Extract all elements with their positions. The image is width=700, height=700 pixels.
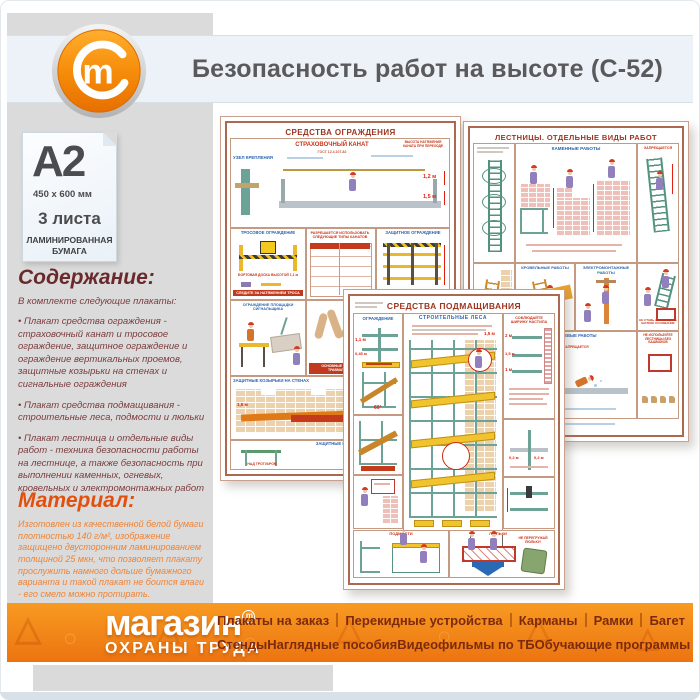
tensioner-part: [241, 282, 251, 287]
anchor-hardware: [235, 183, 259, 188]
text-line: [412, 329, 486, 331]
worker-figure: [644, 294, 651, 306]
page-title: Безопасность работ на высоте (С-52): [192, 35, 692, 103]
worker-figure: [420, 551, 427, 563]
contents-intro: В комплекте следующие плакаты:: [18, 296, 208, 308]
worker-figure: [400, 533, 407, 545]
paper-type: ЛАМИНИРОВАННАЯ БУМАГА: [23, 235, 116, 256]
poster-frame: СРЕДСТВА ПОДМАЩИВАНИЯ ОГРАЖДЕНИЕ 1,1 м 0…: [348, 294, 560, 585]
fence-post: [435, 243, 438, 285]
section-label: ЭЛЕКТРОМОНТАЖНЫЕ РАБОТЫ: [578, 266, 634, 275]
text-line: [412, 333, 478, 335]
dimension-label: 1,5 м: [423, 195, 436, 201]
wall-notch: [261, 389, 275, 395]
menu-item-training-programs[interactable]: Обучающие программы: [535, 637, 691, 652]
dimension-label: 0,45 м: [355, 352, 367, 356]
section-label: ЗАЩИТНЫЕ КОЗЫРЬКИ НА СТЕНАХ: [233, 379, 333, 384]
table-header-bar: [310, 243, 370, 249]
fence-post: [387, 243, 390, 285]
anchor-post: [241, 169, 250, 215]
worker-figure: [490, 538, 497, 550]
chair-outline: [648, 354, 672, 372]
material-section: Материал: Изготовлен из качественной бел…: [18, 489, 208, 601]
ladder-shoe-icon: [651, 396, 657, 403]
material-heading: Материал:: [18, 489, 208, 513]
menu-separator: [640, 613, 642, 627]
section-label: ЗАЩИТНОЕ ОГРАЖДЕНИЕ: [379, 231, 447, 236]
ladder-shoe-icon: [669, 396, 675, 403]
text-line: [355, 302, 383, 304]
walkway-rail: [510, 508, 548, 511]
panel-brace: [353, 415, 403, 475]
pole-crossarm: [596, 280, 616, 283]
info-arrow-head: [474, 567, 502, 576]
caption-label: ВЫСОТА НАТЯЖЕНИЯ КАНАТА ПРИ ПЕРЕХОДЕ: [401, 141, 445, 149]
welder-figure: [575, 376, 589, 387]
panel-ladder-shoes: НЕ ИСПОЛЬЗУЙТЕ ЛЕСТНИЦЫ БЕЗ БАШМАКОВ: [637, 331, 679, 419]
angle-label: 60°: [374, 406, 382, 411]
table-divider: [339, 243, 340, 295]
scaffold: [520, 208, 548, 234]
text-line: [509, 393, 549, 395]
paper-size: 450 x 600 мм: [33, 189, 92, 200]
mannequin-figure: [314, 312, 328, 339]
base-plate: [470, 520, 490, 527]
poster-title: СРЕДСТВА ПОДМАЩИВАНИЯ: [353, 301, 555, 311]
worker-figure: [247, 329, 254, 341]
trestle-tower: [360, 541, 380, 573]
trestle-frame: [392, 545, 440, 573]
menu-item-posters[interactable]: Плакаты на заказ: [217, 613, 329, 628]
section-label: ТРОСОВОЕ ОГРАЖДЕНИЕ: [233, 231, 303, 236]
menu-item-frames[interactable]: Рамки: [594, 613, 634, 628]
base-plate: [414, 520, 434, 527]
panel-unstable-base: НЕ СТАВЬ ЛЕСТНИЦУ НА ШАТКОЕ ОСНОВАНИЕ: [637, 263, 679, 331]
menu-item-visual-aids[interactable]: Наглядные пособия: [267, 637, 397, 652]
sling-line: [280, 317, 287, 335]
text-line: [412, 325, 492, 327]
logo-letter: m: [82, 53, 113, 92]
text-line: [355, 306, 377, 308]
panel-deck-joint: 0,2 м 0,2 м: [503, 419, 555, 477]
caption-label: НАД ТРОТУАРОМ: [237, 463, 287, 467]
menu-separator: [585, 613, 587, 627]
menu-row-2: Стенды Наглядные пособия Видеофильмы по …: [207, 637, 693, 652]
warning-label: НЕ СТАВЬ ЛЕСТНИЦУ НА ШАТКОЕ ОСНОВАНИЕ: [639, 319, 677, 326]
text-line: [477, 151, 503, 153]
brick-wall: [382, 496, 398, 524]
menu-item-baguette[interactable]: Багет: [650, 613, 685, 628]
cage-hoop: [482, 168, 506, 184]
worker-figure: [530, 172, 537, 184]
dimension-arrow: [553, 188, 554, 228]
fence-post: [411, 243, 414, 285]
ladder: [646, 157, 670, 232]
poster-thumbnail-scaffolding[interactable]: СРЕДСТВА ПОДМАЩИВАНИЯ ОГРАЖДЕНИЕ 1,1 м 0…: [343, 289, 565, 590]
table-title: РАЗРЕШАЕТСЯ ИСПОЛЬЗОВАТЬ СЛЕДУЮЩИЕ ТИПЫ …: [309, 231, 371, 239]
sheet-count: 3 листа: [23, 209, 116, 229]
weld-spark: [594, 384, 597, 387]
panel-cable-fence: ТРОСОВОЕ ОГРАЖДЕНИЕ БОРТОВАЯ ДОСКА ВЫСОТ…: [230, 228, 306, 300]
dimension-label: 1 м: [505, 368, 512, 373]
text-line: [374, 483, 390, 485]
panel-signalman-platform: ОГРАЖДЕНИЕ ПЛОЩАДКИ СИГНАЛЬЩИКА: [230, 300, 306, 376]
person-silhouette: [526, 486, 532, 498]
striped-bar: [239, 255, 297, 259]
warning-label: ЗАПРЕЩАЕТСЯ: [640, 146, 676, 150]
shop-logo[interactable]: m: [50, 22, 148, 120]
section-label: ОГРАЖДЕНИЕ: [357, 316, 399, 321]
toe-board-stripe: [366, 363, 392, 365]
cage-hoop: [482, 194, 506, 210]
warning-bar: [361, 466, 395, 471]
panel-safety-rope: СТРАХОВОЧНЫЙ КАНАТ ГОСТ 12.4.107-82 УЗЕЛ…: [230, 138, 450, 228]
poster-content: СРЕДСТВА ПОДМАЩИВАНИЯ ОГРАЖДЕНИЕ 1,1 м 0…: [353, 299, 555, 580]
dimension-label: 1,2 м: [423, 175, 436, 181]
platform-leg: [241, 347, 243, 367]
menu-row-1: Плакаты на заказ Перекидные устройства К…: [207, 613, 693, 628]
dimension-arrow: [444, 245, 445, 285]
section-label: СОБЛЮДАЙТЕ ШИРИНУ НАСТИЛА: [507, 316, 551, 325]
menu-separator: [336, 613, 338, 627]
contents-item: • Плакат лестница и отдельные виды работ…: [18, 433, 208, 496]
deck-bar: [512, 336, 542, 339]
deck-bar: [512, 354, 542, 357]
worker-figure: [293, 353, 300, 365]
worker-figure: [662, 276, 669, 288]
hatched-wall: [544, 328, 552, 384]
dimension-arrow: [507, 488, 508, 512]
footer-bar: △ ○ △ ○ △ ○ △ △ магазинm ОХРАНЫ ТРУДА Пл…: [7, 603, 693, 662]
section-label: СТРАХОВОЧНЫЙ КАНАТ: [277, 142, 387, 149]
panel-cradles: ЛЮЛЬКИ НЕ ПЕРЕГРУЖАЙ ЛЮЛЬКУ!: [449, 530, 555, 578]
safety-rope-line: [283, 169, 425, 171]
guardrail-post: [378, 328, 381, 364]
dimension-label: 2 м: [505, 334, 512, 339]
section-label: СТРОИТЕЛЬНЫЕ ЛЕСА: [413, 316, 493, 322]
product-page: Безопасность работ на высоте (С-52) m A2…: [0, 0, 700, 700]
panel-masonry-works: КАМЕННЫЕ РАБОТЫ: [515, 143, 637, 263]
material-body: Изготовлен из качественной белой бумаги …: [18, 519, 208, 601]
text-line: [509, 403, 547, 405]
dimension-arrow: [444, 171, 445, 185]
warning-sign: [371, 479, 395, 494]
gost-label: ГОСТ 12.4.107-82: [297, 150, 367, 154]
safety-pattern-icon: △: [15, 609, 41, 649]
support-post: [528, 430, 531, 470]
panel-trestles: ПОДМОСТИ: [353, 530, 449, 578]
brick-wall: [520, 184, 550, 208]
text-line: [287, 157, 323, 159]
warning-label: НЕ ИСПОЛЬЗУЙТЕ ЛЕСТНИЦЫ БЕЗ БАШМАКОВ: [639, 334, 677, 345]
worker-figure: [468, 538, 475, 550]
deck-bar: [512, 370, 542, 373]
section-label: ОГРАЖДЕНИЕ ПЛОЩАДКИ СИГНАЛЬЩИКА: [233, 303, 303, 312]
panel-worker-sign: [353, 475, 403, 529]
worker-figure: [584, 310, 591, 322]
walk-beam: [279, 201, 441, 208]
cage-hoop: [482, 220, 506, 236]
worker-figure: [349, 179, 356, 191]
worker-figure: [608, 166, 615, 178]
brick-step: [556, 188, 572, 198]
text-line: [509, 388, 549, 390]
poster-title: ЛЕСТНИЦЫ. ОТДЕЛЬНЫЕ ВИДЫ РАБОТ: [473, 133, 679, 142]
contents-item: • Плакат средства подмащивания - строите…: [18, 400, 208, 425]
text-line: [526, 244, 622, 246]
warning-sign: [260, 241, 276, 254]
text-line: [509, 398, 543, 400]
tensioner-part: [261, 283, 281, 286]
menu-separator: [510, 613, 512, 627]
panel-deck-width: СОБЛЮДАЙТЕ ШИРИНУ НАСТИЛА 2 м 1,5 м 1 м: [503, 313, 555, 419]
section-label: ЛЮЛЬКИ: [478, 532, 518, 537]
dimension-arrow: [672, 164, 673, 194]
worker-figure: [656, 178, 663, 190]
wall-notch: [311, 389, 325, 395]
contents-section: Содержание: В комплекте следующие плакат…: [18, 266, 208, 495]
warning-bar: СЛЕДИТЕ ЗА НАТЯЖЕНИЕМ ТРОСА: [233, 290, 303, 296]
ladder-shoe-icon: [660, 396, 666, 403]
menu-item-pockets[interactable]: Карманы: [519, 613, 578, 628]
base-plate: [442, 520, 462, 527]
text-line: [371, 155, 413, 157]
contents-item: • Плакат средства ограждения - страховоч…: [18, 316, 208, 391]
poster-title: СРЕДСТВА ОГРАЖДЕНИЯ: [230, 128, 451, 137]
panel-electrical-works: ЭЛЕКТРОМОНТАЖНЫЕ РАБОТЫ: [575, 263, 637, 331]
weld-spark: [600, 380, 602, 382]
warning-label: НЕ ПЕРЕГРУЖАЙ ЛЮЛЬКУ!: [514, 537, 552, 545]
paper-format: A2: [32, 137, 84, 187]
section-label: УЗЕЛ КРЕПЛЕНИЯ: [233, 155, 273, 160]
worker-figure: [475, 356, 482, 368]
menu-item-safety-videos[interactable]: Видеофильмы по ТБ: [397, 637, 534, 652]
winch-device: [520, 547, 547, 574]
brick-wall: [556, 198, 590, 236]
dimension-label: 1,1 м: [355, 338, 366, 343]
panel-ladder-cage: [473, 143, 515, 263]
bottom-edge: [0, 692, 700, 700]
safety-pattern-icon: ○: [63, 625, 78, 653]
worker-figure: [602, 292, 609, 304]
panel-ladder-rules: ЗАПРЕЩАЕТСЯ: [637, 143, 679, 263]
panel-construction-scaffolds: СТРОИТЕЛЬНЫЕ ЛЕСА 1,5 м: [403, 313, 503, 531]
paper-spec-card: A2 450 x 600 мм 3 листа ЛАМИНИРОВАННАЯ Б…: [22, 132, 117, 262]
text-line: [510, 466, 548, 468]
text-line: [477, 147, 509, 149]
dimension-label: 1,5 м: [237, 403, 248, 408]
dimension-label: 0,2 м: [534, 456, 544, 460]
contents-heading: Содержание:: [18, 266, 208, 290]
dimension-arrow: [593, 184, 594, 232]
panel-guardrail: ОГРАЖДЕНИЕ 1,1 м 0,45 м 60°: [353, 313, 403, 415]
worker-figure: [566, 176, 573, 188]
dimension-label: 1,5 м: [484, 332, 495, 337]
section-label: КРОВЕЛЬНЫЕ РАБОТЫ: [518, 266, 572, 271]
panel-walkway: [503, 477, 555, 529]
brick-wall: [596, 180, 630, 236]
caption-label: БОРТОВАЯ ДОСКА ВЫСОТОЙ 1,1 м: [233, 274, 303, 278]
menu-item-flip-systems[interactable]: Перекидные устройства: [345, 613, 502, 628]
dimension-label: 0,2 м: [509, 456, 519, 460]
worker-figure: [361, 494, 368, 506]
text-line: [532, 250, 616, 252]
detail-circle: [442, 442, 470, 470]
ladder-shoe-icon: [642, 396, 648, 403]
beam-post: [281, 179, 285, 203]
platform-leg: [263, 347, 265, 367]
menu-item-stands[interactable]: Стенды: [217, 637, 267, 652]
dimension-arrow: [444, 191, 445, 205]
footer-gray-strip: [33, 665, 333, 691]
dimension-label: 1,5 м: [505, 352, 515, 356]
section-label: КАМЕННЫЕ РАБОТЫ: [526, 146, 626, 151]
footer-menu: Плакаты на заказ Перекидные устройства К…: [207, 603, 693, 662]
